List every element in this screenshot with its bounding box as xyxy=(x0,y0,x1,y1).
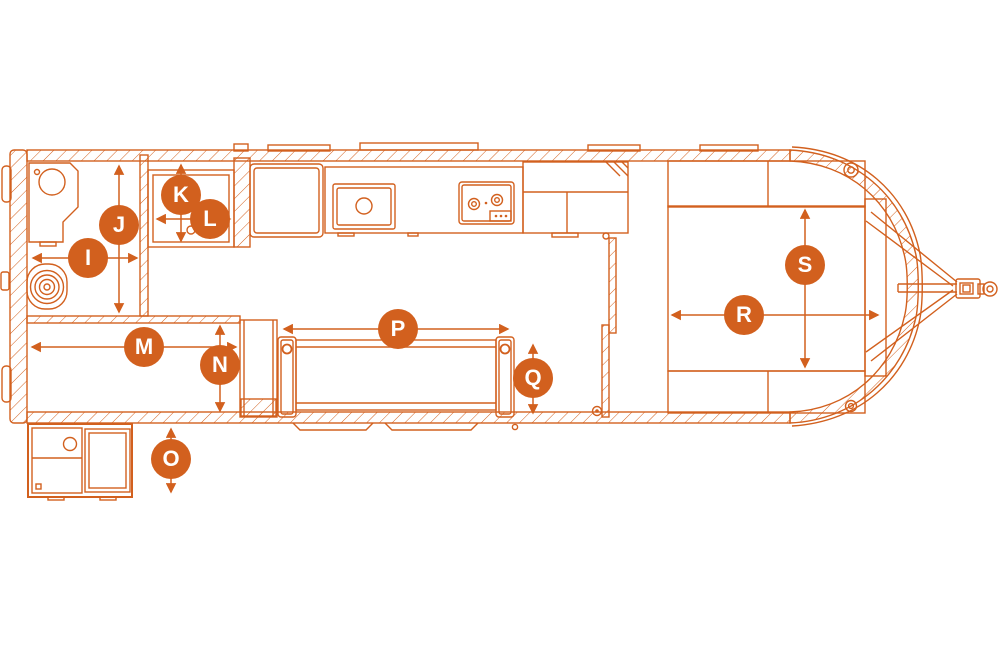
dimension-marker-O: O xyxy=(151,439,191,479)
dimension-marker-S: S xyxy=(785,245,825,285)
dimension-marker-P: P xyxy=(378,309,418,349)
toilet-icon xyxy=(44,284,50,290)
bed-icon xyxy=(668,206,865,371)
partition-lower xyxy=(602,325,609,417)
control-knob xyxy=(495,215,498,218)
partition-walls xyxy=(593,238,617,417)
floorplan-canvas: I J K L M N O P Q R S xyxy=(0,0,1000,650)
counter-tab xyxy=(338,233,354,236)
bedroom xyxy=(668,161,886,413)
vanity-sink-icon xyxy=(39,169,65,195)
door-hinge-icon xyxy=(595,409,599,413)
pantry-hatch xyxy=(606,162,628,176)
cupholder-icon xyxy=(283,345,292,354)
cupholder-icon xyxy=(501,345,510,354)
headboard xyxy=(865,199,886,376)
dimension-marker-L: L xyxy=(190,199,230,239)
kitchen-sink-inner xyxy=(337,188,391,225)
hitch-ball-icon xyxy=(983,282,997,296)
storage-compartment xyxy=(85,429,130,492)
door-hinge-icon xyxy=(603,233,609,239)
bathroom-wall-bottom xyxy=(27,316,240,323)
kitchen xyxy=(250,162,628,239)
dimension-marker-M: M xyxy=(124,327,164,367)
kitchen-counter xyxy=(325,167,523,233)
vanity-tab xyxy=(40,242,56,246)
dimension-marker-N: N xyxy=(200,345,240,385)
dimension-marker-I: I xyxy=(68,238,108,278)
partition-upper xyxy=(609,238,616,333)
toilet-icon xyxy=(40,280,55,295)
pantry-cabinet-icon xyxy=(523,162,628,233)
bathroom-wall-vertical xyxy=(140,155,148,316)
rear-handle xyxy=(1,272,9,290)
sink-drain-icon xyxy=(356,198,372,214)
nose-outer-skin xyxy=(792,147,922,426)
control-knob xyxy=(505,215,508,218)
burner-icon xyxy=(64,438,77,451)
kitchen-sink-icon xyxy=(333,184,395,229)
storage-foot xyxy=(48,497,64,500)
burner-icon xyxy=(469,199,480,210)
nose-wall xyxy=(790,150,918,423)
bathroom xyxy=(27,155,240,323)
cabinet-step-hatch xyxy=(241,399,276,416)
shower-side-wall xyxy=(234,158,250,247)
storage-dot xyxy=(36,484,41,489)
storage-foot xyxy=(100,497,116,500)
toilet-icon xyxy=(35,275,59,299)
counter-tab xyxy=(408,233,418,236)
exterior-storage xyxy=(28,424,132,500)
burner-icon xyxy=(495,198,500,203)
refrigerator-icon xyxy=(250,164,323,237)
burner-dot xyxy=(485,202,488,205)
faucet-icon xyxy=(35,170,40,175)
dimension-marker-J: J xyxy=(99,205,139,245)
pantry-tab xyxy=(552,233,578,237)
hitch-ball-icon xyxy=(987,286,993,292)
rear-lounge xyxy=(240,320,277,417)
dimension-marker-Q: Q xyxy=(513,358,553,398)
hitch-coupler-latch xyxy=(963,285,970,292)
awning-hardware xyxy=(293,423,373,430)
rear-wall xyxy=(10,150,27,423)
storage-compartment xyxy=(32,428,82,493)
door-latch xyxy=(512,424,517,429)
awning-hardware xyxy=(385,423,478,430)
exterior-storage-box-icon xyxy=(28,424,132,497)
burner-icon xyxy=(492,195,503,206)
dimension-marker-R: R xyxy=(724,295,764,335)
floorplan-drawing xyxy=(0,0,1000,650)
burner-icon xyxy=(472,202,477,207)
sofa xyxy=(278,337,514,417)
control-knob xyxy=(500,215,503,218)
sofa-seat xyxy=(296,340,496,410)
roof-rail xyxy=(360,143,478,150)
storage-compartment-inner xyxy=(89,433,126,488)
refrigerator-inner xyxy=(254,168,319,233)
